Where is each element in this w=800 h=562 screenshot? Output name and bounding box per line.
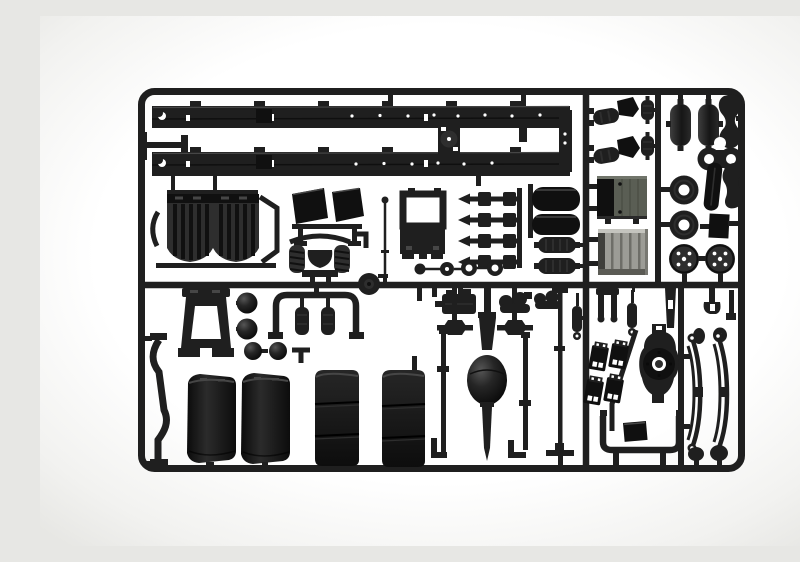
ribbed-fender-2: [213, 194, 259, 262]
ribbed-fender-1: [167, 194, 213, 262]
box-fender-1: [315, 370, 359, 471]
small-box-part: [623, 421, 648, 442]
sprue-photo-canvas: [40, 16, 800, 546]
sprue-photo: [40, 16, 800, 546]
cab-tilt-stand: [178, 285, 234, 357]
box-fender-2: [382, 356, 425, 471]
pulley-disc: [358, 273, 380, 295]
smooth-fender-1: [187, 374, 236, 470]
smooth-fender-2: [241, 373, 290, 470]
